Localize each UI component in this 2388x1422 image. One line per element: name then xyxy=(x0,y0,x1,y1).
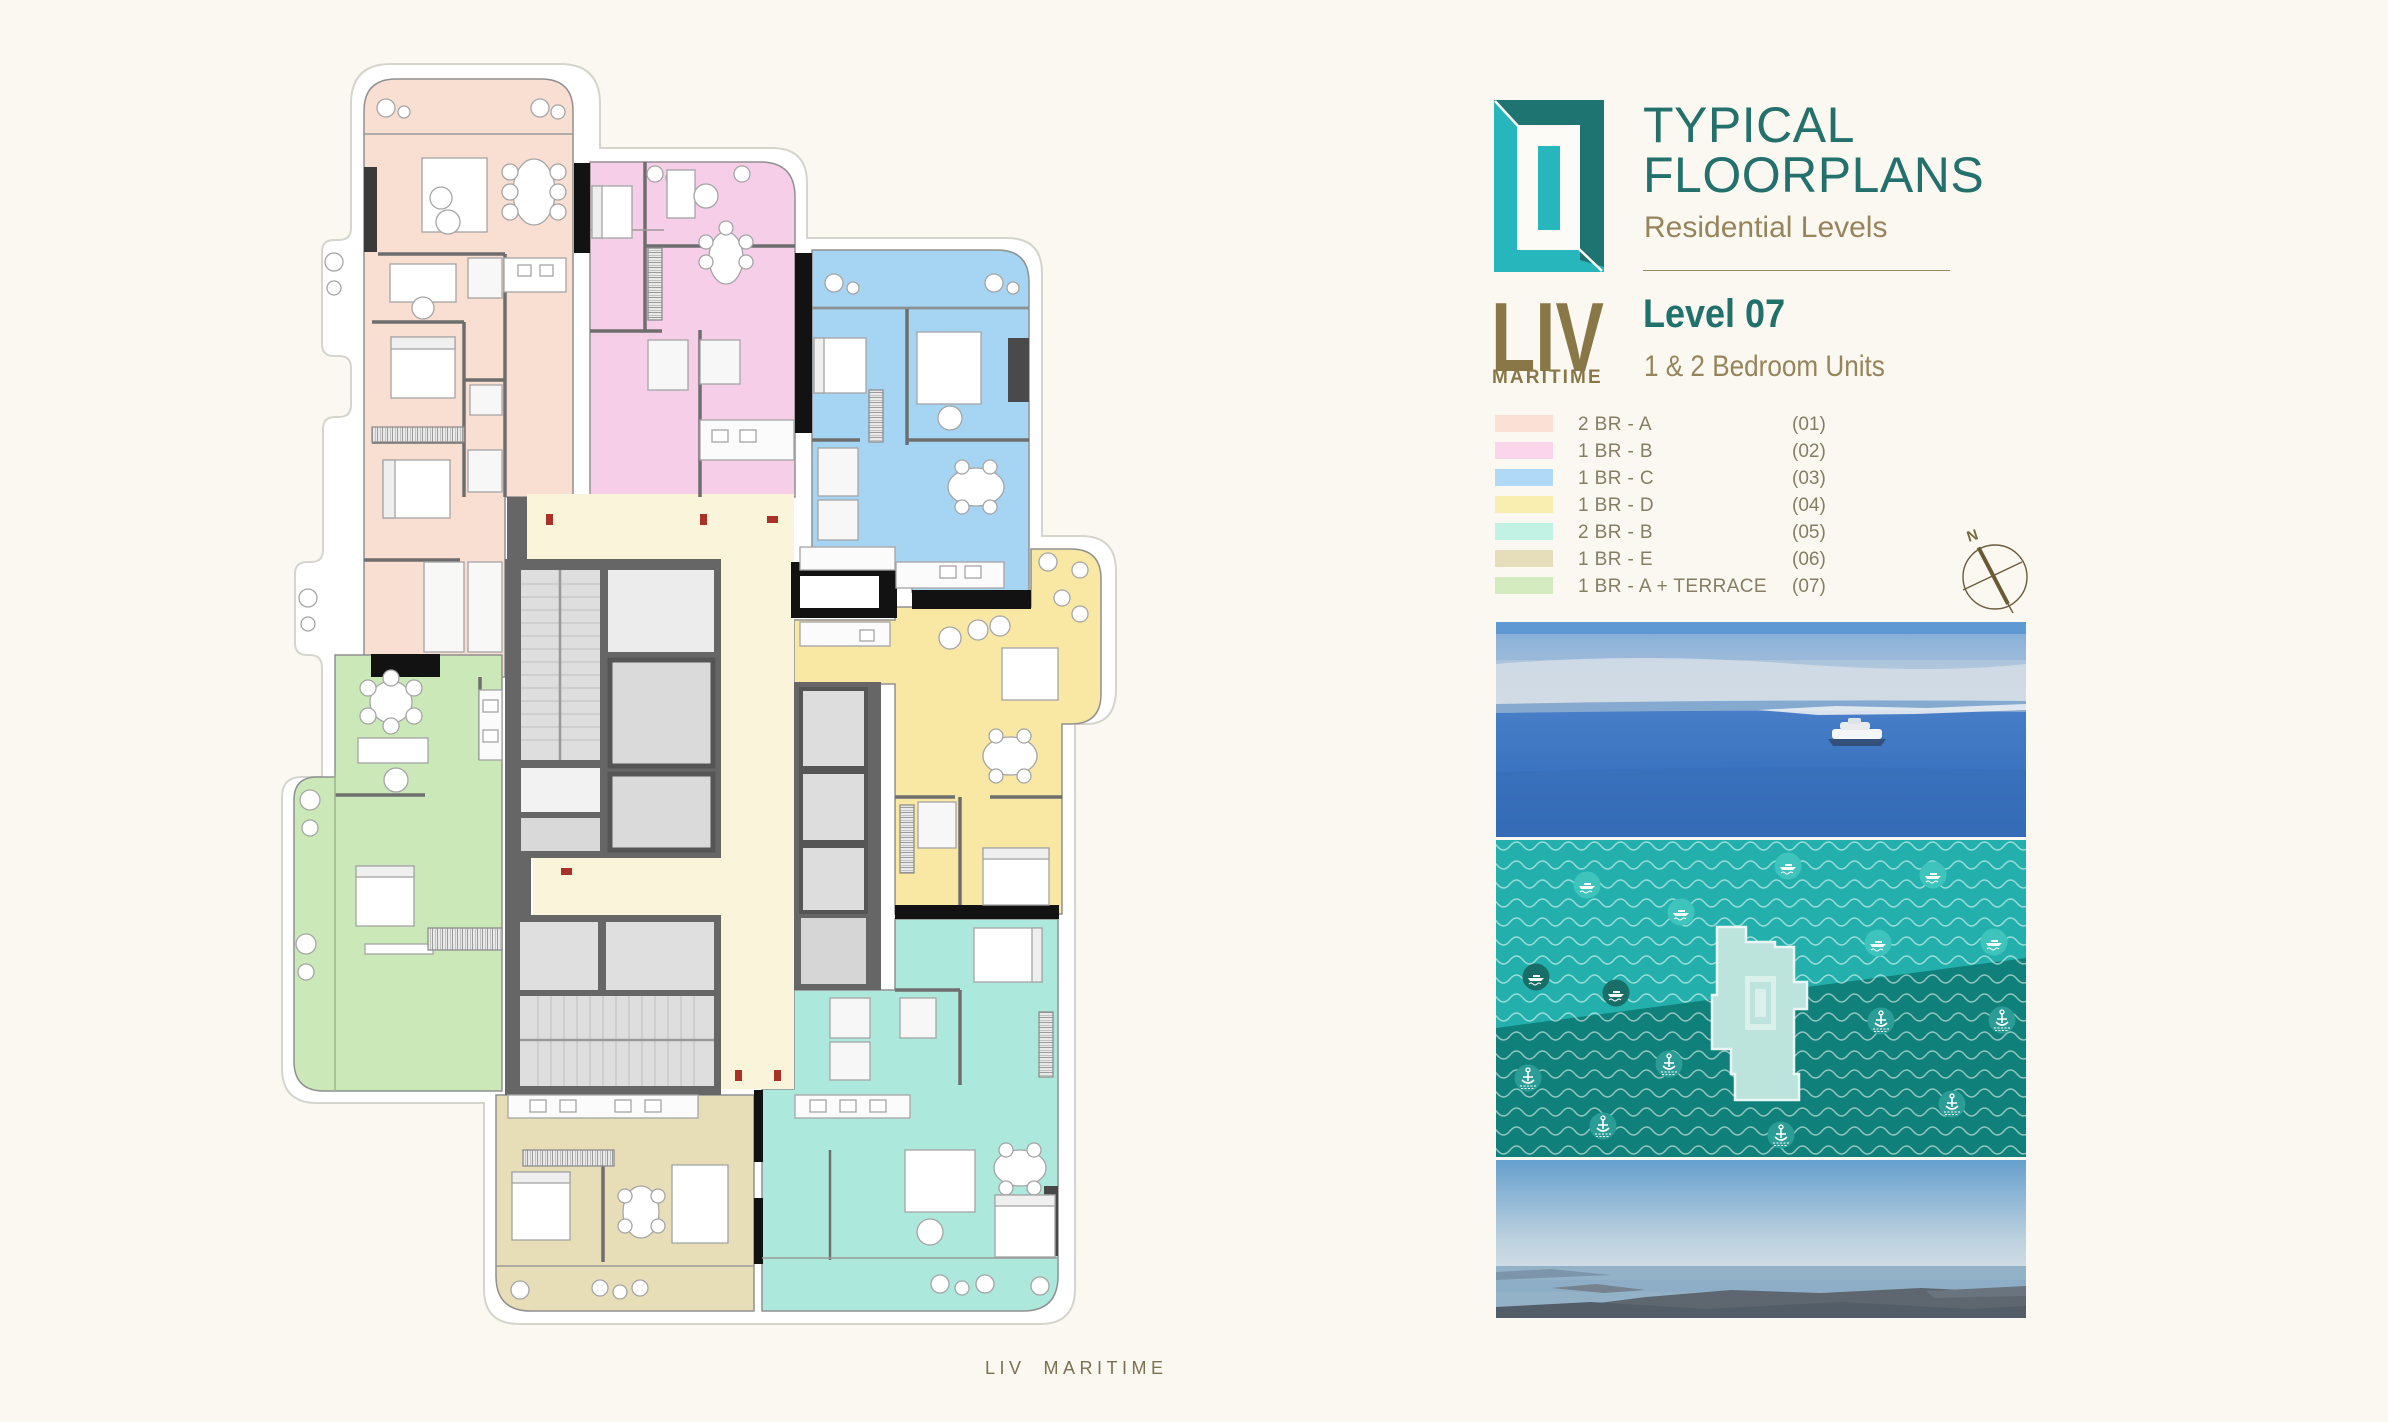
svg-text:N: N xyxy=(1965,526,1981,546)
